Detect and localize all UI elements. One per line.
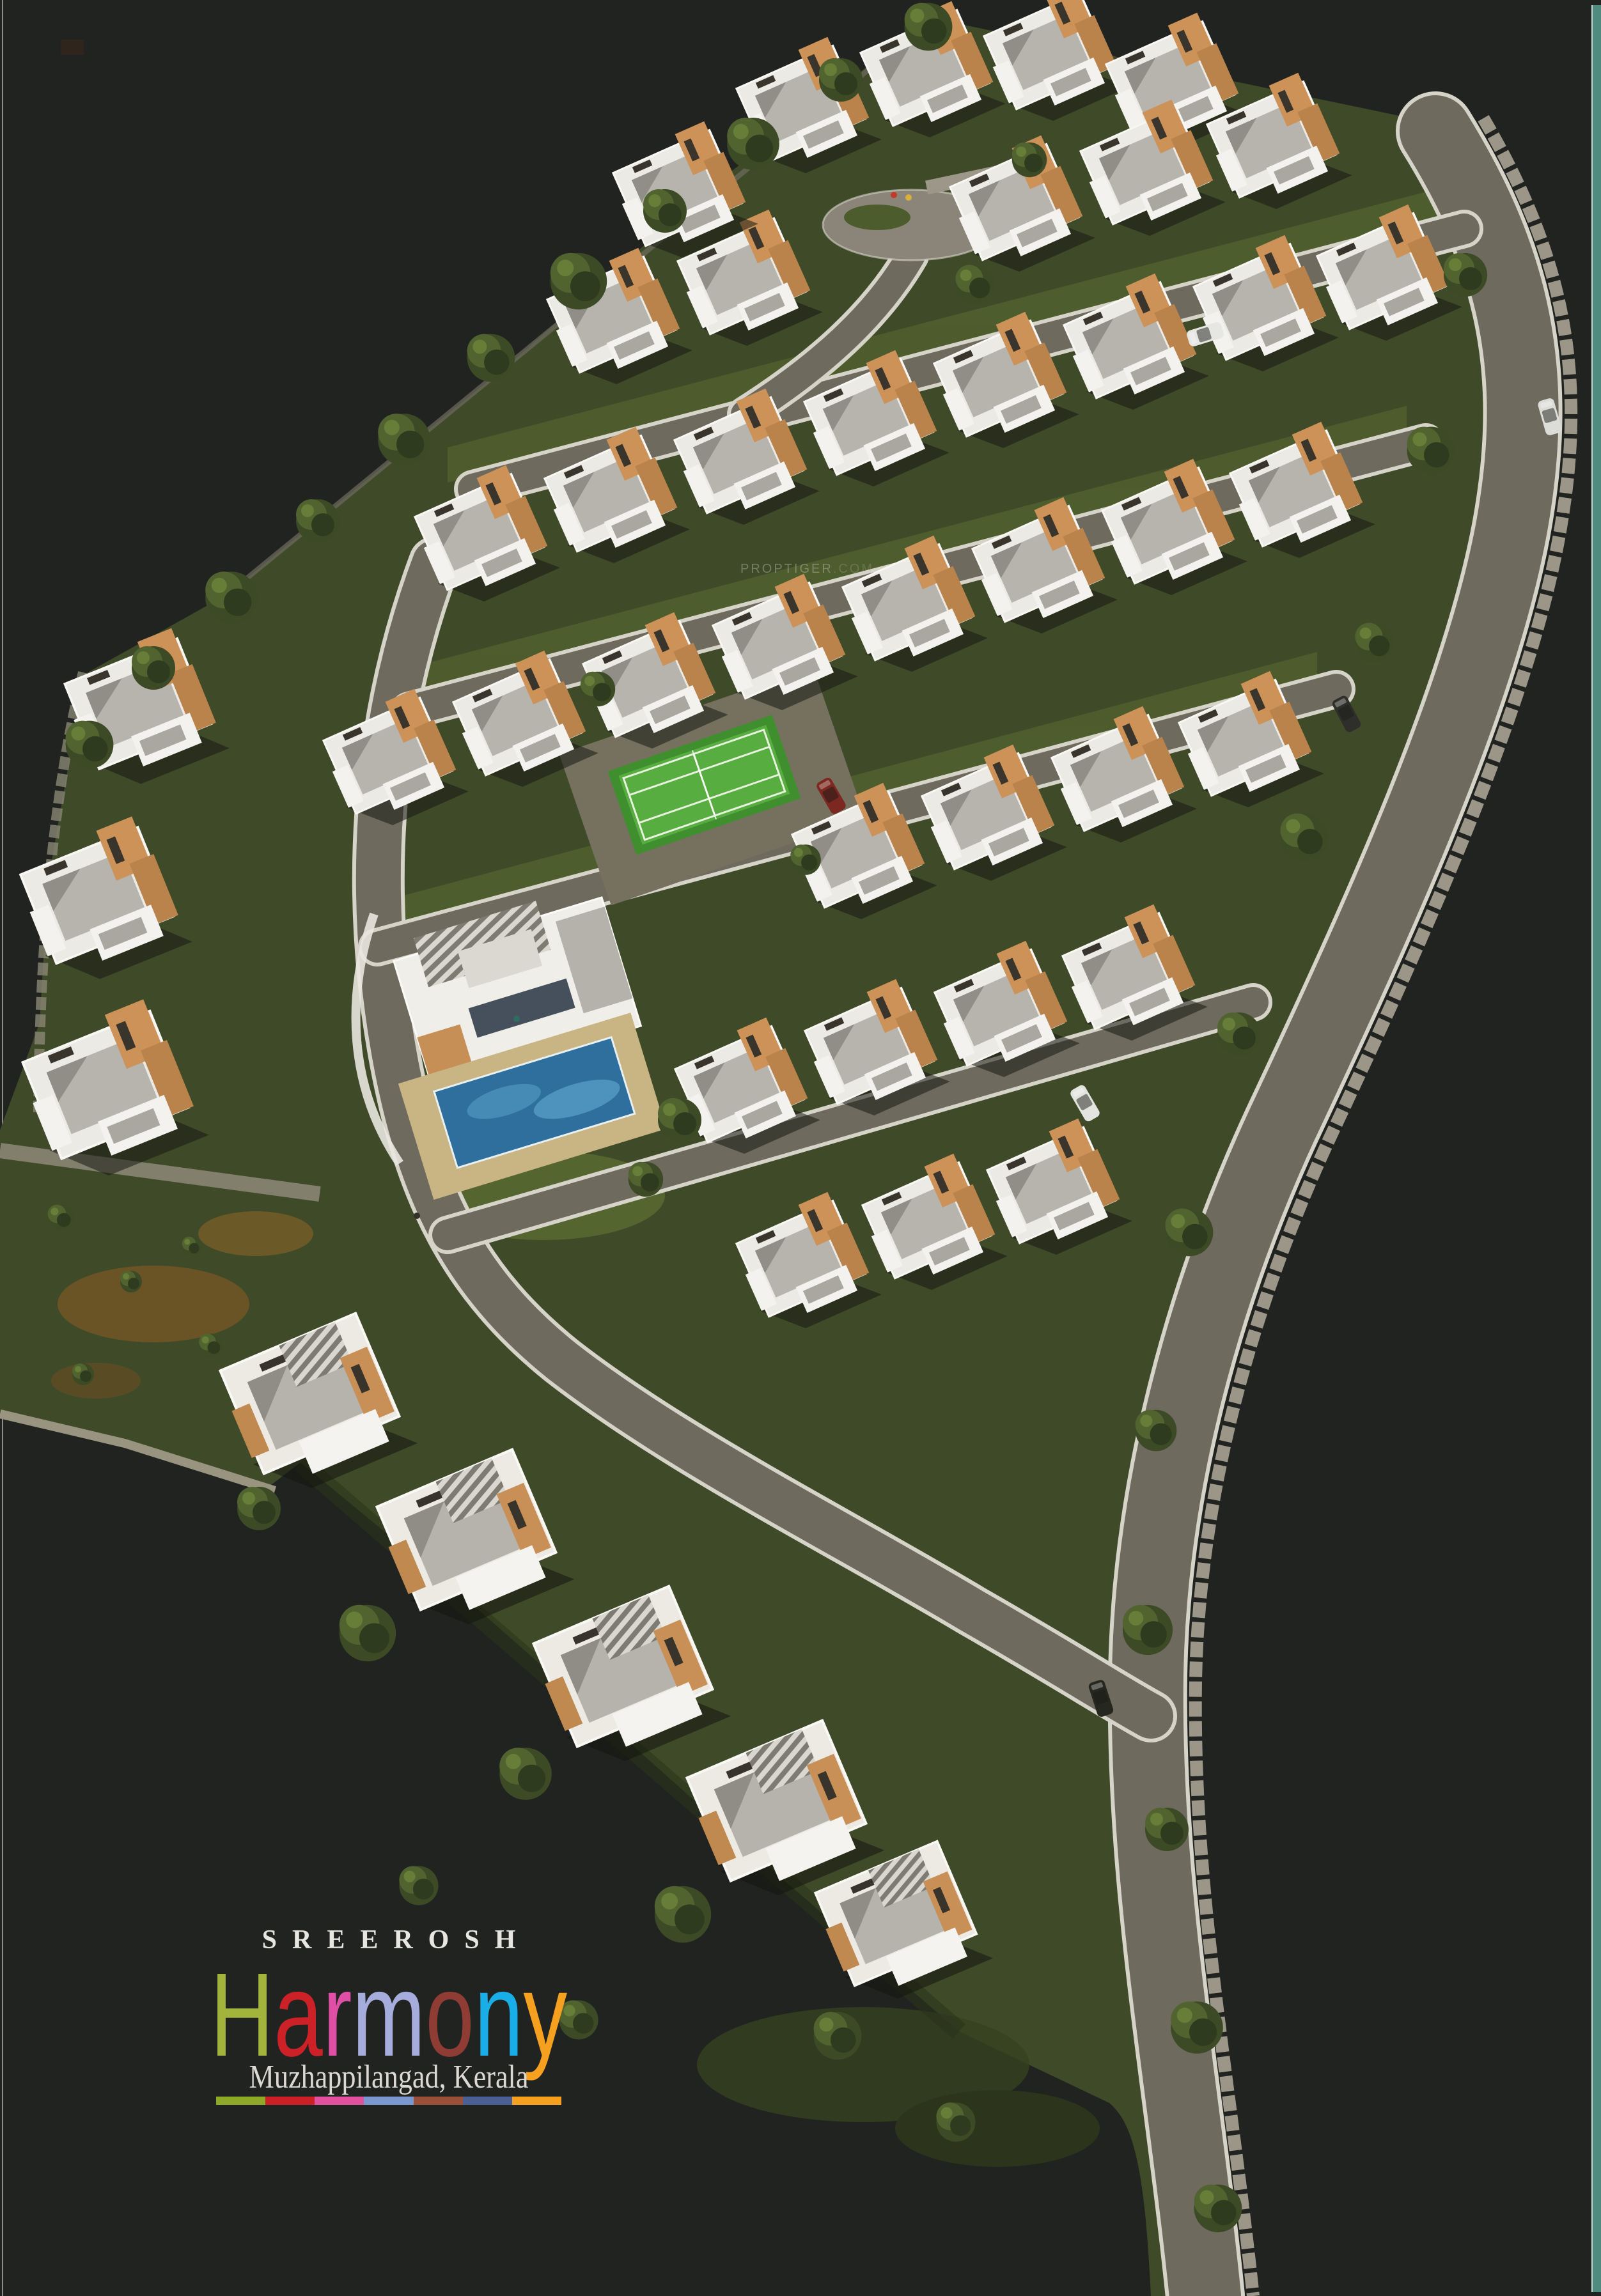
tree <box>1136 1410 1177 1452</box>
tree <box>378 414 430 466</box>
tree <box>1171 2001 1223 2054</box>
person <box>905 194 912 201</box>
logo-bar-segment <box>315 2097 364 2105</box>
person <box>891 192 897 198</box>
tree <box>205 571 258 624</box>
logo-bar-segment <box>216 2097 265 2105</box>
tree <box>237 1487 281 1530</box>
tree <box>814 2012 862 2060</box>
tree <box>955 265 994 304</box>
tree <box>66 721 114 769</box>
tree <box>1217 1012 1261 1056</box>
tree <box>120 1271 142 1292</box>
tree <box>629 1162 663 1197</box>
tree <box>643 189 687 233</box>
bottom-lawn-fade <box>895 2090 1100 2167</box>
tree <box>905 3 953 51</box>
logo-color-bar <box>216 2097 561 2105</box>
tree <box>1145 1808 1189 1851</box>
project-name: Harmony <box>129 1956 649 2075</box>
tree <box>296 499 340 543</box>
tree <box>72 1363 94 1385</box>
logo-bar-segment <box>265 2097 315 2105</box>
tree <box>551 253 607 309</box>
tree <box>1281 814 1329 862</box>
logo-bar-segment <box>463 2097 512 2105</box>
tree <box>499 1748 552 1800</box>
tree <box>1355 623 1394 662</box>
logo-bar-segment <box>364 2097 413 2105</box>
tree <box>182 1237 202 1257</box>
logo-bar-segment <box>512 2097 561 2105</box>
watermark: PROPTIGER.COM <box>740 562 874 577</box>
tree <box>1407 427 1455 475</box>
tree <box>467 334 515 382</box>
tree <box>1166 1209 1214 1257</box>
tree <box>658 1098 701 1142</box>
watermark-text: PROPTIGER <box>740 562 833 576</box>
tree <box>1012 143 1047 177</box>
logo-bar-segment <box>414 2097 463 2105</box>
right-accent-stripe <box>1591 5 1601 2292</box>
project-logo: SREEROSH Harmony Muzhappilangad, Kerala <box>37 1924 740 2105</box>
tree <box>819 58 863 102</box>
tree <box>199 1333 223 1357</box>
tree <box>1444 253 1487 297</box>
tree <box>581 672 615 706</box>
tree <box>790 844 821 875</box>
tree <box>727 118 779 170</box>
poster-canvas: PROPTIGER.COM SREEROSH Harmony Muzhappil… <box>0 0 1601 2296</box>
person <box>414 1213 420 1219</box>
tree <box>936 2102 975 2141</box>
tree <box>399 1866 438 1905</box>
person <box>513 1016 520 1022</box>
tree <box>132 646 175 690</box>
tree <box>340 1605 396 1661</box>
project-name-letter: y <box>523 1949 567 2081</box>
tree <box>1123 1605 1173 1655</box>
tree <box>48 1205 74 1231</box>
tree <box>1194 2185 1242 2233</box>
watermark-suffix: .COM <box>833 562 874 576</box>
